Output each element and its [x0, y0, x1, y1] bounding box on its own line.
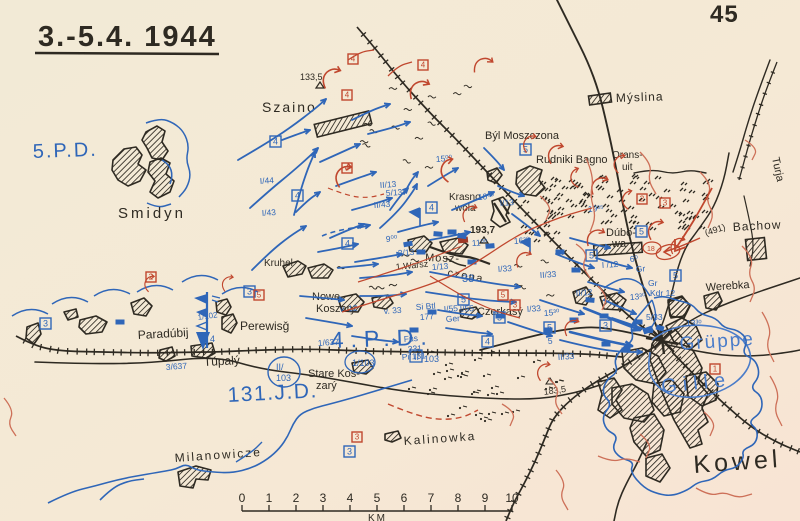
svg-text:45: 45: [710, 1, 739, 28]
svg-text:0: 0: [239, 491, 246, 505]
svg-text:5: 5: [257, 291, 262, 300]
svg-text:Füs: Füs: [403, 333, 418, 344]
svg-text:Rudniki Bagno: Rudniki Bagno: [536, 154, 608, 166]
svg-text:1: 1: [266, 491, 273, 505]
svg-text:II/13: II/13: [379, 179, 396, 190]
svg-text:3: 3: [247, 287, 252, 297]
svg-text:Mýslina: Mýslina: [616, 89, 664, 105]
svg-text:5: 5: [589, 251, 594, 261]
svg-text:5: 5: [673, 271, 678, 281]
svg-text:II/12: II/12: [575, 287, 592, 298]
svg-text:193,7: 193,7: [470, 225, 495, 236]
svg-text:15³⁰: 15³⁰: [543, 307, 560, 318]
svg-text:3: 3: [663, 199, 668, 208]
svg-text:Gr: Gr: [648, 278, 658, 288]
svg-text:4: 4: [273, 137, 278, 147]
svg-text:II/33: II/33: [539, 269, 556, 280]
svg-text:I/55: I/55: [459, 303, 474, 314]
svg-text:8: 8: [455, 491, 462, 505]
svg-text:4: 4: [485, 337, 490, 347]
svg-text:4: 4: [210, 334, 215, 344]
svg-text:3: 3: [43, 319, 48, 329]
svg-text:wa: wa: [611, 238, 627, 250]
svg-text:Kdr 12: Kdr 12: [650, 288, 675, 298]
svg-text:5/33: 5/33: [646, 312, 663, 322]
svg-text:6: 6: [401, 491, 408, 505]
svg-text:II/43: II/43: [373, 199, 390, 210]
svg-text:18: 18: [647, 246, 655, 253]
svg-text:Gr: Gr: [635, 263, 645, 274]
svg-text:Pi 131: Pi 131: [401, 350, 426, 362]
svg-text:2: 2: [149, 273, 154, 282]
svg-text:3: 3: [513, 301, 518, 310]
svg-text:4: 4: [345, 91, 350, 100]
svg-text:Túpalý: Túpalý: [203, 353, 240, 369]
svg-text:4: 4: [421, 61, 426, 70]
svg-text:103: 103: [424, 354, 439, 364]
svg-text:9: 9: [482, 491, 489, 505]
svg-text:II/: II/: [276, 362, 284, 372]
svg-text:3/637: 3/637: [165, 361, 187, 372]
svg-text:Stare Kos-: Stare Kos-: [308, 368, 360, 380]
svg-text:Kruhel: Kruhel: [264, 258, 293, 269]
svg-text:zarý: zarý: [316, 380, 337, 392]
svg-text:5: 5: [501, 291, 506, 300]
svg-text:1/637: 1/637: [317, 337, 339, 348]
svg-text:6⁰: 6⁰: [629, 253, 638, 264]
svg-text:uit: uit: [622, 162, 633, 173]
svg-text:I/44: I/44: [259, 175, 274, 186]
svg-text:Bachow: Bachow: [732, 217, 781, 234]
svg-text:1: 1: [713, 365, 718, 374]
svg-text:I/33: I/33: [526, 303, 541, 314]
svg-text:13³⁰: 13³⁰: [629, 291, 646, 302]
svg-text:3: 3: [320, 491, 327, 505]
svg-text:5: 5: [639, 227, 644, 237]
svg-text:Perewisǧ: Perewisǧ: [240, 319, 289, 333]
svg-text:Býl Moszczona: Býl Moszczona: [485, 130, 560, 142]
svg-text:10⁰⁰: 10⁰⁰: [477, 191, 495, 202]
svg-text:9⁰⁰: 9⁰⁰: [385, 233, 398, 244]
svg-text:Paradúbij: Paradúbij: [137, 325, 188, 342]
svg-text:4: 4: [347, 491, 354, 505]
svg-text:v. 33: v. 33: [383, 305, 402, 316]
svg-text:4: 4: [345, 164, 350, 173]
svg-text:33: 33: [462, 273, 474, 285]
svg-text:I/43: I/43: [261, 207, 276, 218]
svg-text:1/103: 1/103: [352, 358, 375, 368]
svg-text:13³⁰: 13³⁰: [686, 318, 702, 328]
svg-text:I/13: I/13: [499, 197, 514, 208]
svg-text:3: 3: [347, 447, 352, 457]
svg-text:4: 4: [429, 203, 434, 213]
svg-text:7: 7: [428, 491, 435, 505]
svg-text:Smidyn: Smidyn: [118, 205, 186, 222]
svg-text:4: 4: [295, 191, 300, 201]
svg-text:10: 10: [505, 491, 519, 505]
svg-text:177: 177: [419, 311, 434, 322]
svg-text:KM: KM: [368, 513, 387, 521]
svg-text:II/33: II/33: [557, 351, 574, 362]
svg-text:2: 2: [640, 195, 645, 204]
svg-text:I/33: I/33: [497, 263, 512, 274]
svg-text:3.-5.4. 1944: 3.-5.4. 1944: [38, 21, 217, 53]
svg-text:133,5: 133,5: [300, 72, 323, 82]
svg-text:5: 5: [497, 313, 502, 323]
svg-text:3: 3: [355, 433, 360, 442]
svg-text:2: 2: [293, 491, 300, 505]
svg-text:1/13: 1/13: [431, 261, 448, 272]
svg-text:I /12: I /12: [601, 259, 618, 270]
svg-text:103: 103: [276, 373, 291, 383]
svg-text:5: 5: [374, 491, 381, 505]
svg-text:5: 5: [547, 323, 552, 333]
svg-text:Ger: Ger: [445, 313, 460, 324]
svg-text:5.P.D.: 5.P.D.: [32, 139, 98, 163]
svg-text:2/13: 2/13: [397, 247, 414, 258]
svg-text:11⁰⁰: 11⁰⁰: [471, 237, 488, 248]
svg-text:3: 3: [603, 321, 608, 331]
svg-text:4: 4: [345, 239, 350, 249]
